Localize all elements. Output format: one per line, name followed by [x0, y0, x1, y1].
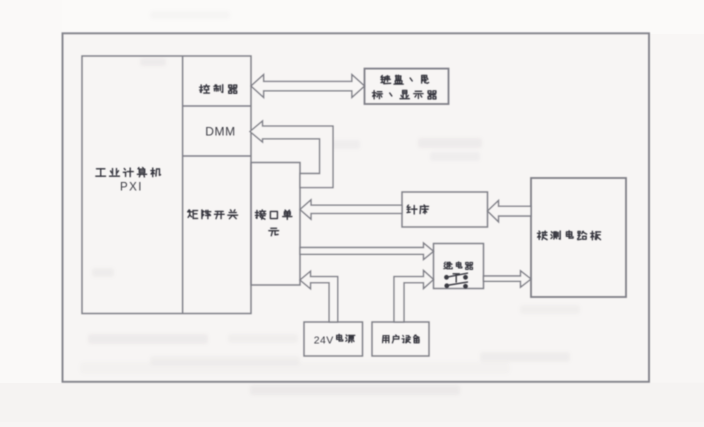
svg-text:DMM: DMM: [205, 125, 235, 139]
svg-text:24V: 24V: [314, 334, 334, 346]
svg-text:PXI: PXI: [120, 182, 143, 194]
